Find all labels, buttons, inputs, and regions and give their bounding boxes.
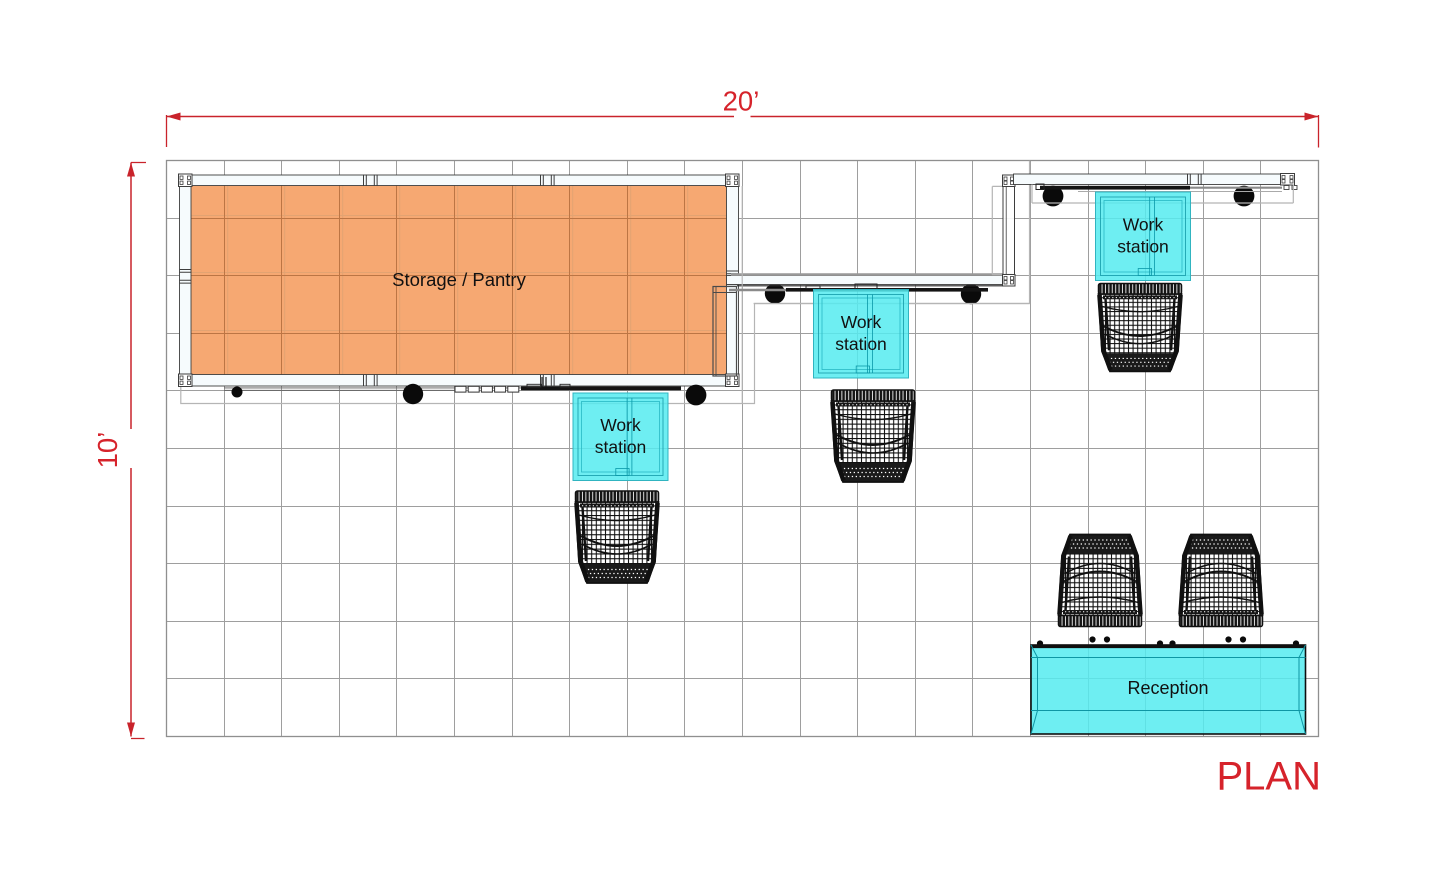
svg-text:station: station	[835, 334, 887, 354]
svg-text:Work: Work	[1123, 215, 1164, 235]
svg-text:20’: 20’	[723, 86, 760, 117]
svg-text:PLAN: PLAN	[1217, 755, 1322, 799]
svg-text:station: station	[1117, 237, 1169, 257]
svg-text:Reception: Reception	[1127, 678, 1208, 698]
svg-text:Work: Work	[600, 415, 641, 435]
svg-text:Work: Work	[841, 312, 882, 332]
svg-text:10’: 10’	[92, 432, 123, 469]
svg-text:station: station	[595, 437, 647, 457]
svg-text:Storage / Pantry: Storage / Pantry	[392, 269, 526, 290]
